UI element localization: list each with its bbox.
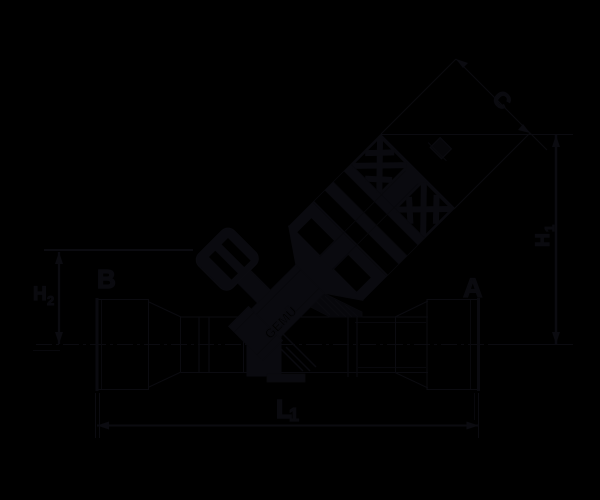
svg-text:1: 1 [542,225,557,232]
svg-text:1: 1 [289,405,299,425]
svg-text:A: A [463,273,483,303]
svg-text:H: H [33,284,47,305]
svg-text:2: 2 [47,293,54,308]
svg-text:H: H [533,233,554,247]
svg-text:B: B [97,264,116,294]
